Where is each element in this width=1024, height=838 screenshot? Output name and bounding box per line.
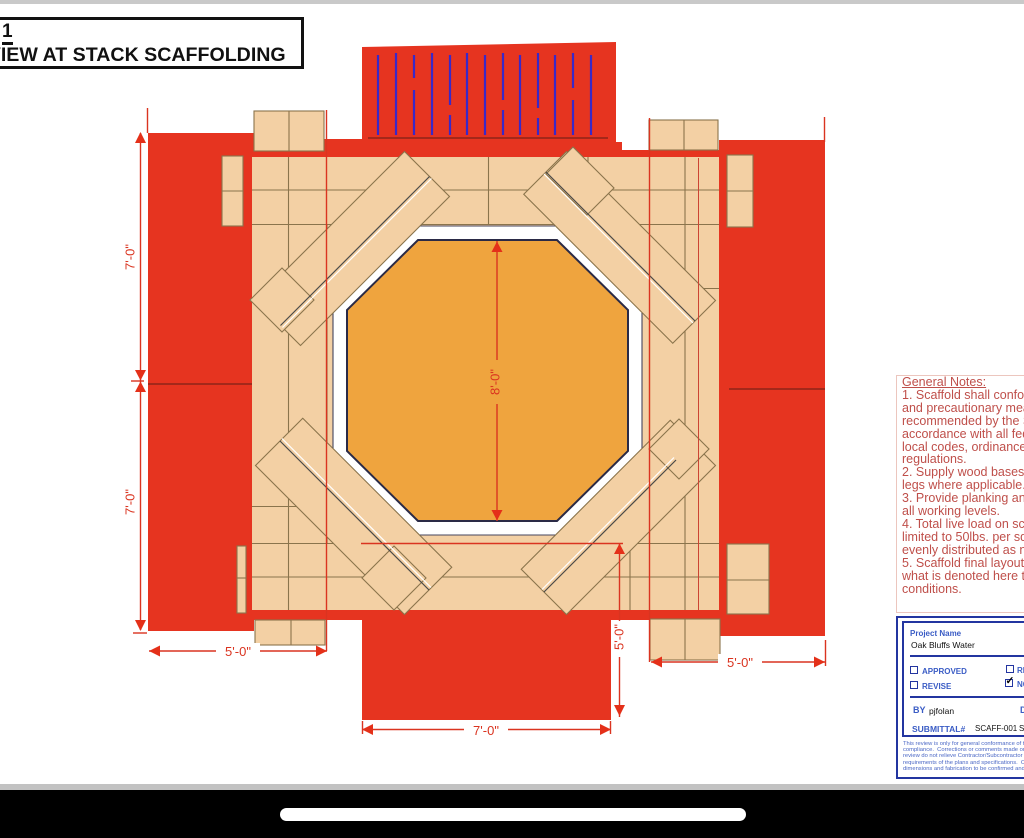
svg-text:7'-0": 7'-0" bbox=[473, 723, 499, 738]
svg-text:5'-0": 5'-0" bbox=[225, 644, 251, 659]
svg-text:7'-0": 7'-0" bbox=[122, 244, 137, 270]
svg-text:8'-0": 8'-0" bbox=[487, 369, 502, 395]
svg-text:7'-0": 7'-0" bbox=[122, 489, 137, 515]
svg-text:5'-0": 5'-0" bbox=[611, 624, 626, 650]
svg-text:5'-0": 5'-0" bbox=[727, 655, 753, 670]
